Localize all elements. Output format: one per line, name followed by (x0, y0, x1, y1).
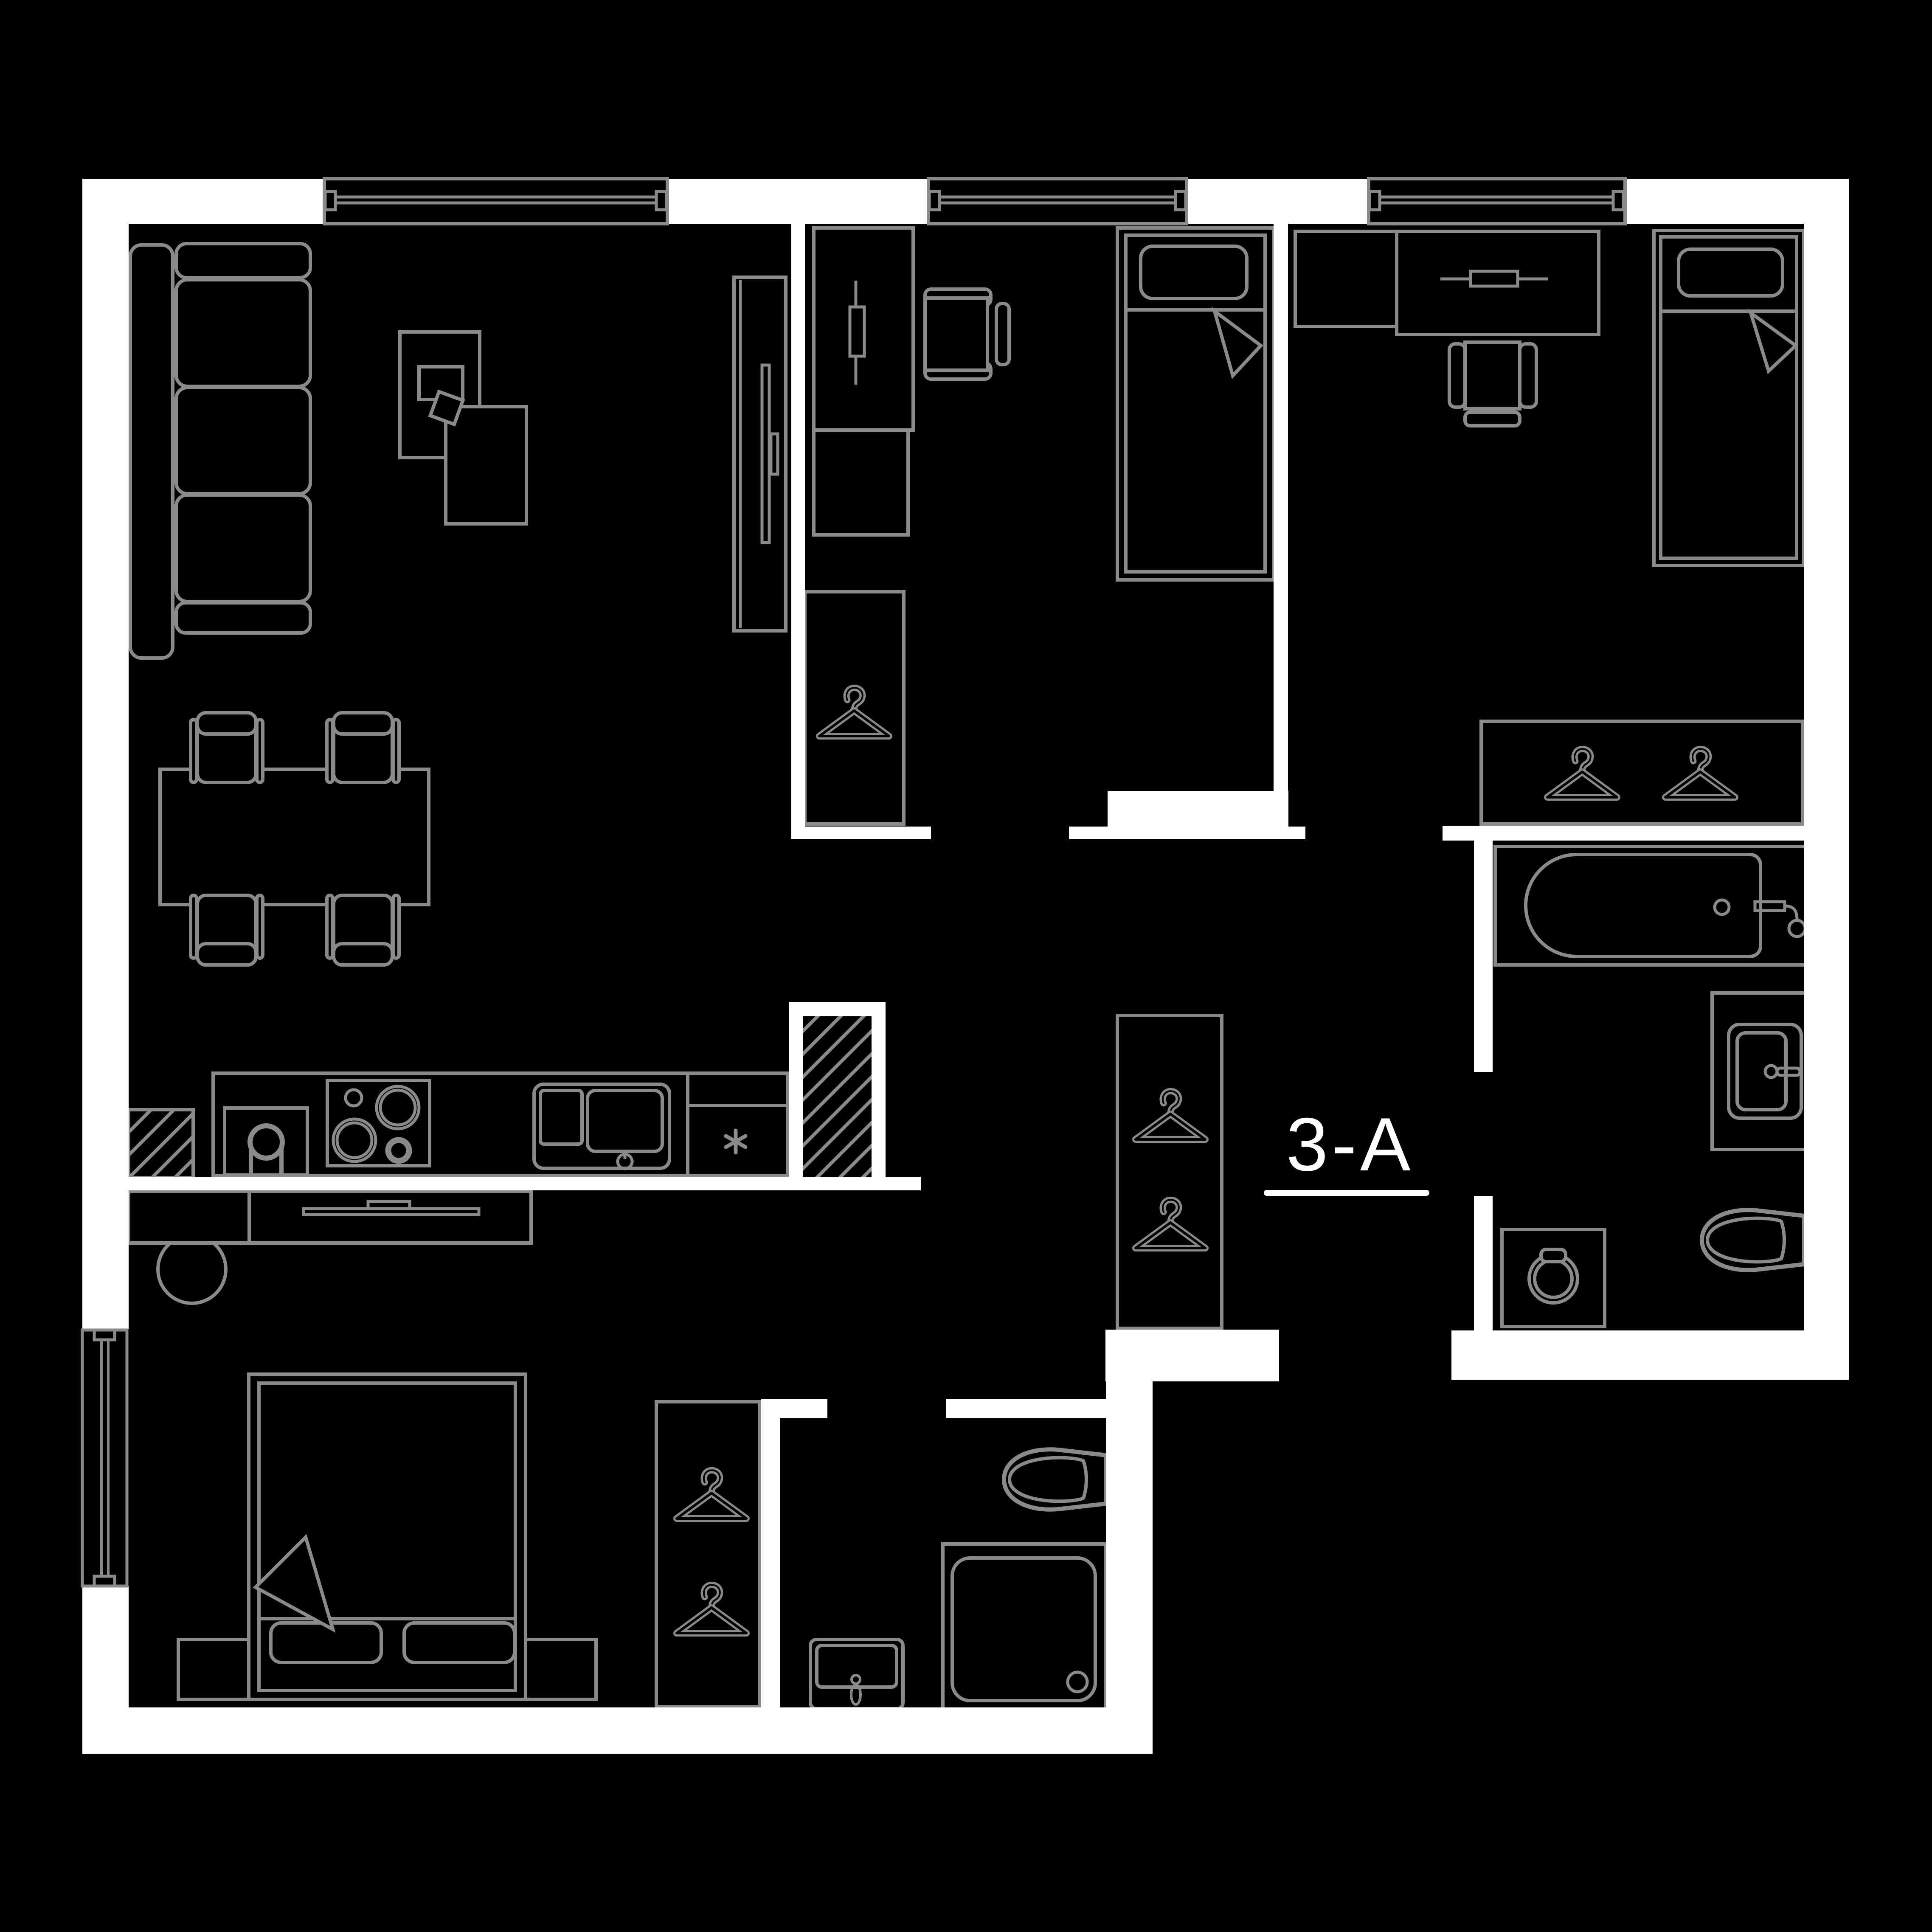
svg-text:3-A: 3-A (1286, 1102, 1414, 1187)
